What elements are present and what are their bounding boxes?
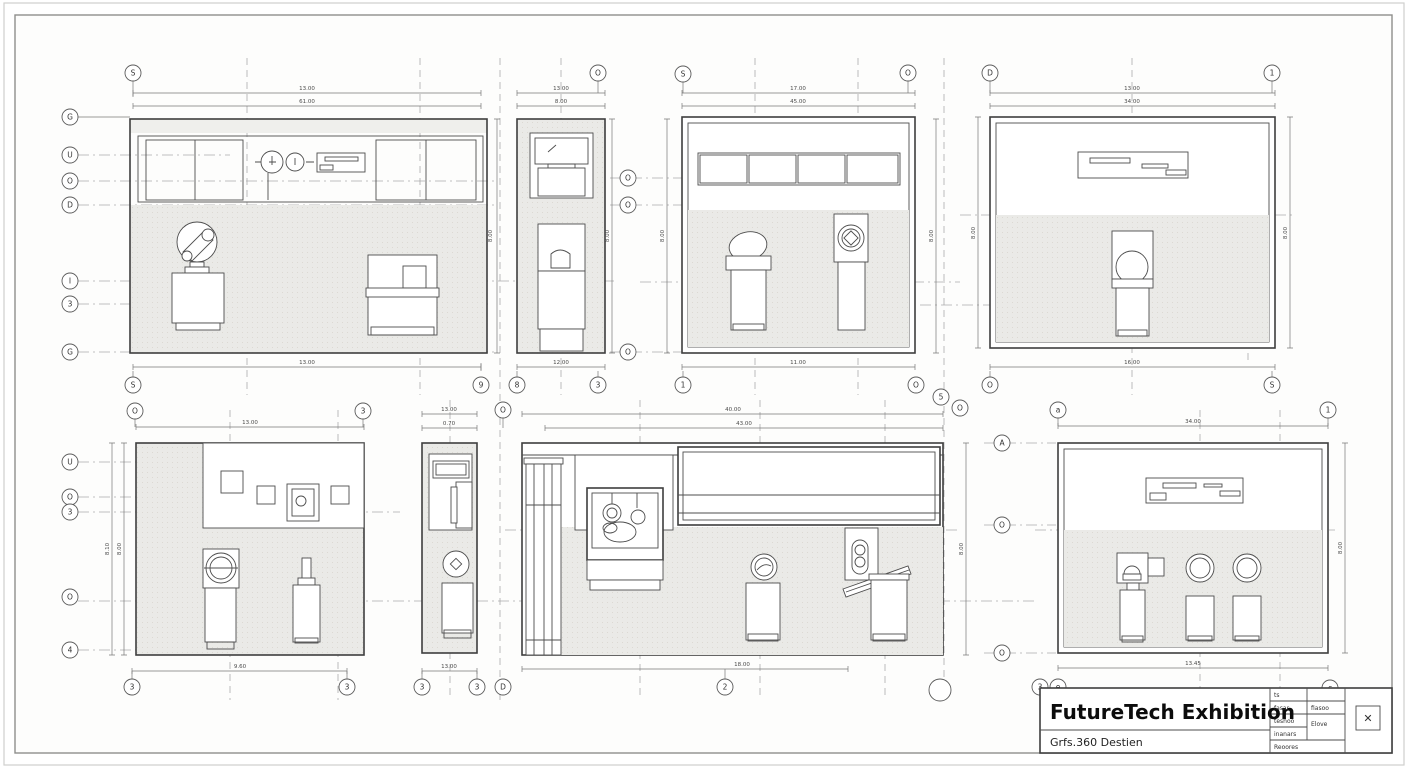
stone-exhibit-pedestal xyxy=(726,228,771,330)
grid-bubble: O xyxy=(994,645,1010,661)
grid-bubble: O xyxy=(908,377,924,393)
title-block-cell: fasar xyxy=(1274,705,1290,712)
grid-bubble: G xyxy=(62,344,78,360)
grid-bubble: G xyxy=(62,109,78,125)
svg-text:45.00: 45.00 xyxy=(790,99,806,105)
svg-text:8.00: 8.00 xyxy=(555,99,568,105)
lens-exhibit-pedestal xyxy=(203,549,239,649)
title-block-cell: teshoo xyxy=(1274,718,1295,725)
grid-bubble: O xyxy=(952,400,968,416)
svg-text:0.70: 0.70 xyxy=(443,421,456,427)
svg-text:S: S xyxy=(681,70,686,79)
grid-bubble: 1 xyxy=(1264,65,1280,81)
svg-text:8.10: 8.10 xyxy=(105,542,111,555)
control-panel xyxy=(317,153,365,172)
svg-text:1: 1 xyxy=(1326,406,1331,415)
svg-text:A: A xyxy=(999,439,1005,448)
svg-text:13.45: 13.45 xyxy=(1185,661,1201,667)
display-case-exhibit xyxy=(366,255,439,335)
sheet-title: FutureTech Exhibition xyxy=(1050,700,1295,724)
grid-bubble: O xyxy=(994,517,1010,533)
grid-bubble: D xyxy=(982,65,998,81)
svg-text:9: 9 xyxy=(479,381,484,390)
title-block-cell: inanars xyxy=(1274,731,1296,738)
grid-bubble: 5 xyxy=(933,389,949,405)
grid-bubble: 9 xyxy=(473,377,489,393)
svg-text:8.00: 8.00 xyxy=(488,229,494,242)
svg-text:3: 3 xyxy=(475,683,480,692)
svg-text:3: 3 xyxy=(361,407,366,416)
svg-text:11.00: 11.00 xyxy=(790,360,806,366)
grid-bubble: O xyxy=(620,344,636,360)
stamp-mark: ✕ xyxy=(1363,712,1372,725)
svg-text:43.00: 43.00 xyxy=(736,421,752,427)
svg-text:5: 5 xyxy=(939,393,944,402)
title-block-cell: ts xyxy=(1274,692,1279,699)
svg-text:O: O xyxy=(132,407,138,416)
svg-text:4: 4 xyxy=(68,646,73,655)
svg-text:O: O xyxy=(67,593,73,602)
svg-text:13.00: 13.00 xyxy=(299,360,315,366)
svg-text:8.00: 8.00 xyxy=(959,542,965,555)
window-strip xyxy=(698,153,900,185)
grid-bubble: 3 xyxy=(469,679,485,695)
svg-text:34.00: 34.00 xyxy=(1185,419,1201,425)
grid-bubble: O xyxy=(982,377,998,393)
grid-bubble: 2 xyxy=(717,679,733,695)
svg-text:12.00: 12.00 xyxy=(553,360,569,366)
svg-text:O: O xyxy=(987,381,993,390)
elevation-view-7 xyxy=(505,400,960,700)
svg-text:8.00: 8.00 xyxy=(117,542,123,555)
grid-bubble: O xyxy=(590,65,606,81)
svg-text:8.00: 8.00 xyxy=(929,229,935,242)
grid-bubble: S xyxy=(125,65,141,81)
svg-text:8.00: 8.00 xyxy=(971,226,977,239)
svg-text:G: G xyxy=(67,113,73,122)
grid-bubble: I xyxy=(62,273,78,289)
sheet-subtitle: Grfs.360 Destien xyxy=(1050,736,1143,749)
svg-text:O: O xyxy=(500,406,506,415)
svg-text:O: O xyxy=(999,521,1005,530)
svg-text:13.00: 13.00 xyxy=(441,407,457,413)
svg-text:O: O xyxy=(625,201,631,210)
grid-bubble: a xyxy=(1050,402,1066,418)
svg-text:O: O xyxy=(67,177,73,186)
svg-text:G: G xyxy=(67,348,73,357)
grid-bubble xyxy=(929,679,951,701)
svg-text:a: a xyxy=(1056,406,1061,415)
ring-exhibit-pedestal-2 xyxy=(1233,554,1261,641)
svg-text:O: O xyxy=(913,381,919,390)
control-console xyxy=(1078,152,1188,178)
grid-bubble: D xyxy=(62,197,78,213)
grid-bubble: 3 xyxy=(339,679,355,695)
title-block-cell: Elove xyxy=(1311,721,1328,728)
grid-bubble: A xyxy=(994,435,1010,451)
grid-bubble: O xyxy=(127,403,143,419)
svg-text:O: O xyxy=(625,348,631,357)
svg-text:D: D xyxy=(500,683,506,692)
svg-text:13.00: 13.00 xyxy=(441,664,457,670)
sphere-exhibit-pedestal xyxy=(1112,231,1153,336)
svg-text:8.00: 8.00 xyxy=(1283,226,1289,239)
control-console-2 xyxy=(1146,478,1243,503)
grid-bubble: S xyxy=(125,377,141,393)
disc-exhibit-pedestal xyxy=(746,554,780,641)
header-banner xyxy=(678,447,940,525)
grid-bubble: U xyxy=(62,147,78,163)
grid-bubble: O xyxy=(495,402,511,418)
grid-bubble: 3 xyxy=(62,504,78,520)
grid-bubble: 4 xyxy=(62,642,78,658)
grid-bubble: U xyxy=(62,454,78,470)
svg-text:O: O xyxy=(67,493,73,502)
title-block: FutureTech Exhibition Grfs.360 Destien t… xyxy=(1040,688,1392,753)
grid-bubble: 3 xyxy=(590,377,606,393)
grid-bubble: S xyxy=(1264,377,1280,393)
svg-text:S: S xyxy=(131,381,136,390)
medallion-exhibit xyxy=(442,551,473,638)
svg-text:U: U xyxy=(67,151,73,160)
grid-bubble: 1 xyxy=(675,377,691,393)
svg-text:9.60: 9.60 xyxy=(234,664,247,670)
title-block-cell: Reoores xyxy=(1274,744,1298,751)
svg-text:U: U xyxy=(67,458,73,467)
svg-text:D: D xyxy=(987,69,993,78)
ring-exhibit-pedestal-1 xyxy=(1186,554,1214,641)
grid-bubble: 3 xyxy=(355,403,371,419)
svg-text:3: 3 xyxy=(420,683,425,692)
stamp-box: ✕ xyxy=(1356,706,1380,730)
svg-text:17.00: 17.00 xyxy=(790,86,806,92)
gallery-wall-panel xyxy=(203,443,364,528)
svg-text:8: 8 xyxy=(515,381,520,390)
door-panel xyxy=(524,458,563,655)
svg-text:O: O xyxy=(957,404,963,413)
svg-text:13.00: 13.00 xyxy=(553,86,569,92)
grid-bubble: D xyxy=(495,679,511,695)
svg-text:O: O xyxy=(625,174,631,183)
grid-bubble: O xyxy=(62,589,78,605)
grid-bubble: 3 xyxy=(414,679,430,695)
svg-text:1: 1 xyxy=(1270,69,1275,78)
svg-text:O: O xyxy=(595,69,601,78)
svg-text:18.00: 18.00 xyxy=(734,662,750,668)
grid-bubble: S xyxy=(675,66,691,82)
capsule-niche xyxy=(845,528,878,580)
grid-bubble: O xyxy=(620,197,636,213)
grid-bubble: O xyxy=(62,173,78,189)
svg-text:3: 3 xyxy=(130,683,135,692)
svg-text:2: 2 xyxy=(723,683,728,692)
svg-text:13.00: 13.00 xyxy=(242,420,258,426)
elevation-view-8 xyxy=(1035,410,1335,690)
wall-screen-unit xyxy=(530,133,593,198)
svg-text:S: S xyxy=(131,69,136,78)
grid-bubble: O xyxy=(900,65,916,81)
svg-text:8.00: 8.00 xyxy=(605,229,611,242)
svg-text:13.00: 13.00 xyxy=(1124,86,1140,92)
svg-text:D: D xyxy=(67,201,73,210)
svg-text:34.00: 34.00 xyxy=(1124,99,1140,105)
grid-bubble: 3 xyxy=(124,679,140,695)
grid-bubble: 3 xyxy=(62,296,78,312)
svg-text:61.00: 61.00 xyxy=(299,99,315,105)
exhibition-elevations-drawing: 13.00 61.00 13.00 8.00 13.00 8.00 12.00 … xyxy=(0,0,1408,768)
svg-text:3: 3 xyxy=(68,300,73,309)
svg-text:16.00: 16.00 xyxy=(1124,360,1140,366)
title-block-cell: fiasoo xyxy=(1311,705,1329,712)
svg-text:3: 3 xyxy=(68,508,73,517)
svg-text:S: S xyxy=(1270,381,1275,390)
svg-text:I: I xyxy=(69,277,71,286)
shelf-unit xyxy=(429,454,472,530)
svg-text:8.00: 8.00 xyxy=(660,229,666,242)
pedestal-case-unit xyxy=(538,224,585,351)
grid-bubble: O xyxy=(62,489,78,505)
svg-text:40.00: 40.00 xyxy=(725,407,741,413)
svg-text:3: 3 xyxy=(596,381,601,390)
svg-text:8.00: 8.00 xyxy=(1338,541,1344,554)
blueprint-sheet: 13.00 61.00 13.00 8.00 13.00 8.00 12.00 … xyxy=(0,0,1408,768)
grid-bubble: 1 xyxy=(1320,402,1336,418)
grid-bubble: O xyxy=(620,170,636,186)
emblem-exhibit-pedestal xyxy=(834,214,868,330)
svg-text:13.00: 13.00 xyxy=(299,86,315,92)
svg-text:3: 3 xyxy=(345,683,350,692)
svg-text:O: O xyxy=(999,649,1005,658)
grid-bubble: 8 xyxy=(509,377,525,393)
svg-text:O: O xyxy=(905,69,911,78)
svg-text:1: 1 xyxy=(681,381,686,390)
robot-arm-exhibit xyxy=(172,222,224,330)
showcase-vitrine xyxy=(575,455,673,590)
